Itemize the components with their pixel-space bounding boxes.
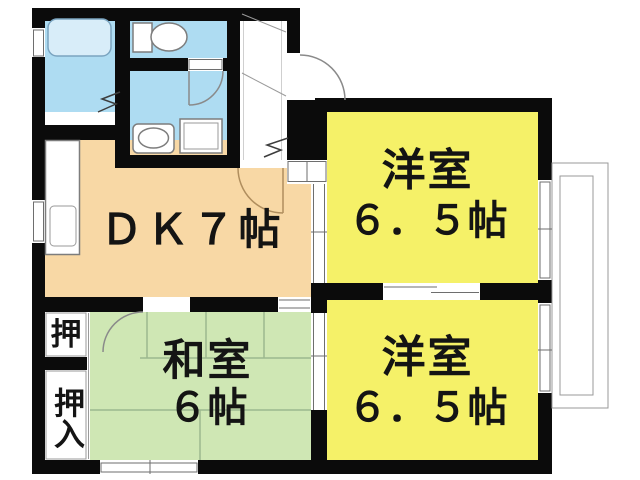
wall-western-top xyxy=(315,98,552,112)
entrance-hall xyxy=(240,21,287,168)
japanese-room-label: 和室 ６帖 xyxy=(115,338,300,431)
western-room-top-label: 洋室 ６．５帖 xyxy=(325,146,530,246)
closet-upper-label: 押 xyxy=(45,315,87,355)
window-bottom xyxy=(100,460,198,474)
wall-right-3 xyxy=(538,393,552,474)
wall-right-1 xyxy=(538,112,552,180)
closet-lower-label: 押入 xyxy=(45,378,87,458)
window-dk xyxy=(32,200,45,243)
wall-center-mid xyxy=(311,283,327,313)
window-right-bottom xyxy=(538,303,552,393)
western-room-top-size: ６．５帖 xyxy=(348,196,508,246)
window-between-western xyxy=(383,283,480,300)
balcony xyxy=(552,163,608,408)
dk-room-label: ＤＫ７帖 xyxy=(85,206,300,254)
western-room-bottom-name: 洋室 xyxy=(382,333,474,383)
wall-washroom-bottom xyxy=(115,155,240,168)
western-room-bottom-size: ６．５帖 xyxy=(348,383,508,433)
toilet-door-opening xyxy=(188,58,223,71)
japanese-room-name: 和室 xyxy=(163,338,253,385)
window-right-top xyxy=(538,180,552,280)
window-bathroom xyxy=(32,28,45,57)
dk-entry-sliding-door xyxy=(287,160,327,184)
wall-bath-bottom xyxy=(32,125,115,140)
floor-plan: ＤＫ７帖 洋室 ６．５帖 洋室 ６．５帖 和室 ６帖 押 押入 xyxy=(0,0,640,480)
western-room-top-name: 洋室 xyxy=(382,146,474,196)
dk-japanese-opening xyxy=(278,297,311,312)
wall-closet-divider xyxy=(45,357,87,370)
japanese-door-opening xyxy=(143,297,190,312)
wall-top xyxy=(32,8,300,21)
bathroom xyxy=(45,21,115,112)
front-door-opening xyxy=(287,53,300,100)
western-room-bottom-label: 洋室 ６．５帖 xyxy=(325,333,530,433)
wall-bath-right xyxy=(115,8,130,155)
wall-hall-left xyxy=(227,8,240,168)
japanese-room-size: ６帖 xyxy=(168,385,248,431)
front-door-arc xyxy=(300,55,345,100)
toilet-room xyxy=(130,21,227,58)
